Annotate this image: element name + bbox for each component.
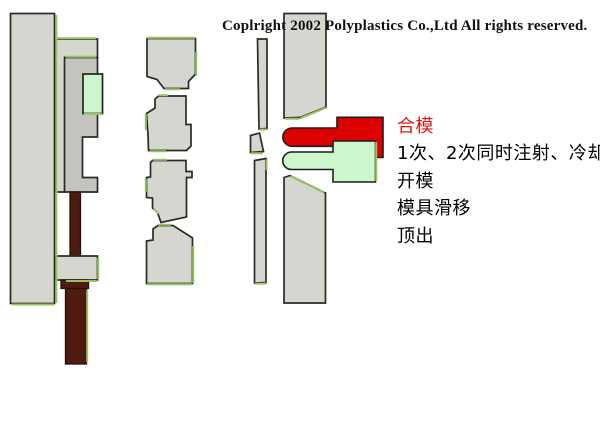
process-step-mold-sliding: 模具滑移 [397,199,471,218]
injection-molding-process-diagram: Coplright 2002 Polyplastics Co.,Ltd All … [0,0,600,430]
process-step-list: 合模 1次、2次同时注射、冷却 开模 模具滑移 顶出 [0,0,600,430]
process-step-injection-cooling: 1次、2次同时注射、冷却 [397,144,600,163]
process-step-ejection: 顶出 [397,227,434,246]
process-step-mold-opening: 开模 [397,172,434,191]
process-step-mold-closing: 合模 [397,117,434,136]
